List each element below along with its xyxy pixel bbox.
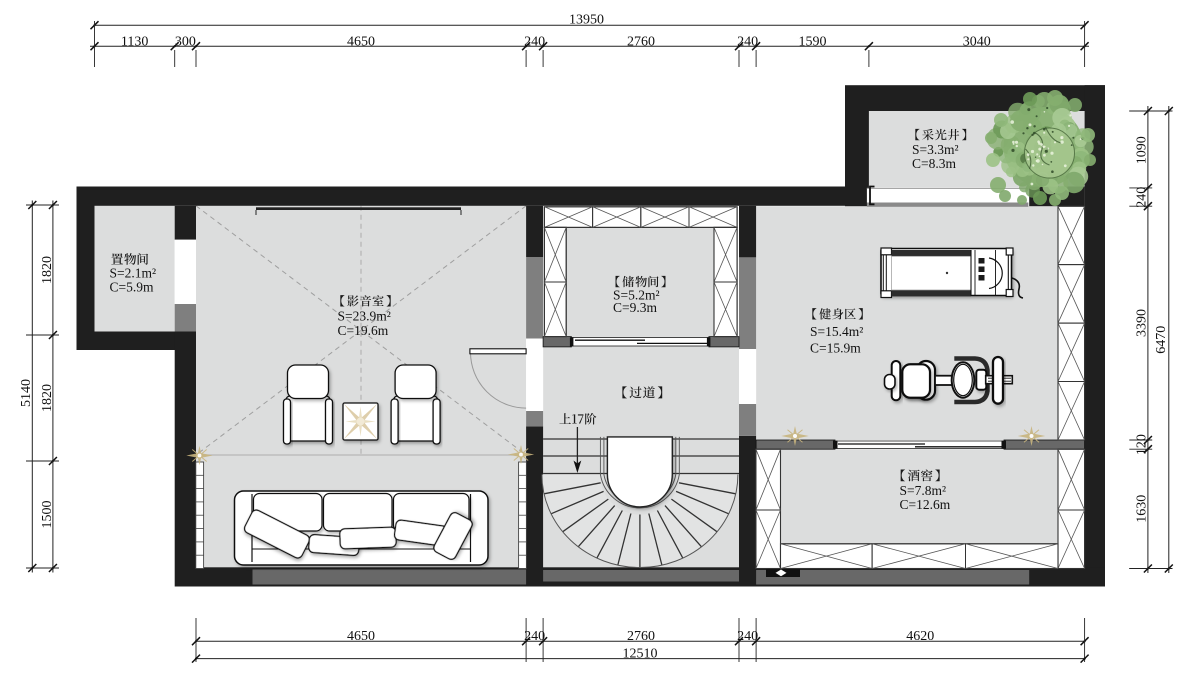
svg-text:C=19.6m: C=19.6m — [338, 323, 389, 338]
svg-text:1820: 1820 — [40, 256, 55, 284]
svg-text:13950: 13950 — [569, 12, 604, 27]
svg-text:S=2.1m²: S=2.1m² — [110, 266, 157, 281]
svg-text:C=5.9m: C=5.9m — [110, 280, 154, 295]
svg-text:1590: 1590 — [799, 34, 827, 49]
svg-text:240: 240 — [737, 629, 758, 644]
svg-text:240: 240 — [524, 629, 545, 644]
svg-text:C=15.9m: C=15.9m — [810, 341, 861, 356]
svg-text:5140: 5140 — [19, 379, 34, 407]
svg-text:S=7.8m²: S=7.8m² — [900, 483, 947, 498]
svg-text:12510: 12510 — [623, 646, 658, 661]
svg-text:240: 240 — [1135, 187, 1150, 208]
svg-text:C=8.3m: C=8.3m — [912, 156, 956, 171]
svg-text:1820: 1820 — [40, 384, 55, 412]
svg-text:S=23.9m²: S=23.9m² — [338, 309, 391, 324]
svg-text:4650: 4650 — [347, 34, 375, 49]
svg-text:1630: 1630 — [1135, 495, 1150, 523]
svg-text:C=9.3m: C=9.3m — [613, 300, 657, 315]
svg-text:240: 240 — [524, 34, 545, 49]
svg-text:S=15.4m²: S=15.4m² — [810, 324, 863, 339]
svg-text:2760: 2760 — [627, 34, 655, 49]
svg-text:120: 120 — [1135, 434, 1150, 455]
svg-text:S=3.3m²: S=3.3m² — [912, 142, 959, 157]
svg-text:4650: 4650 — [347, 629, 375, 644]
svg-text:3040: 3040 — [963, 34, 991, 49]
svg-text:1090: 1090 — [1135, 136, 1150, 164]
svg-text:3390: 3390 — [1135, 309, 1150, 337]
svg-text:300: 300 — [175, 34, 196, 49]
svg-text:4620: 4620 — [906, 629, 934, 644]
svg-text:1130: 1130 — [121, 34, 148, 49]
svg-text:C=12.6m: C=12.6m — [900, 497, 951, 512]
svg-text:240: 240 — [737, 34, 758, 49]
svg-text:2760: 2760 — [627, 629, 655, 644]
svg-text:1500: 1500 — [40, 501, 55, 529]
svg-text:6470: 6470 — [1154, 326, 1169, 354]
